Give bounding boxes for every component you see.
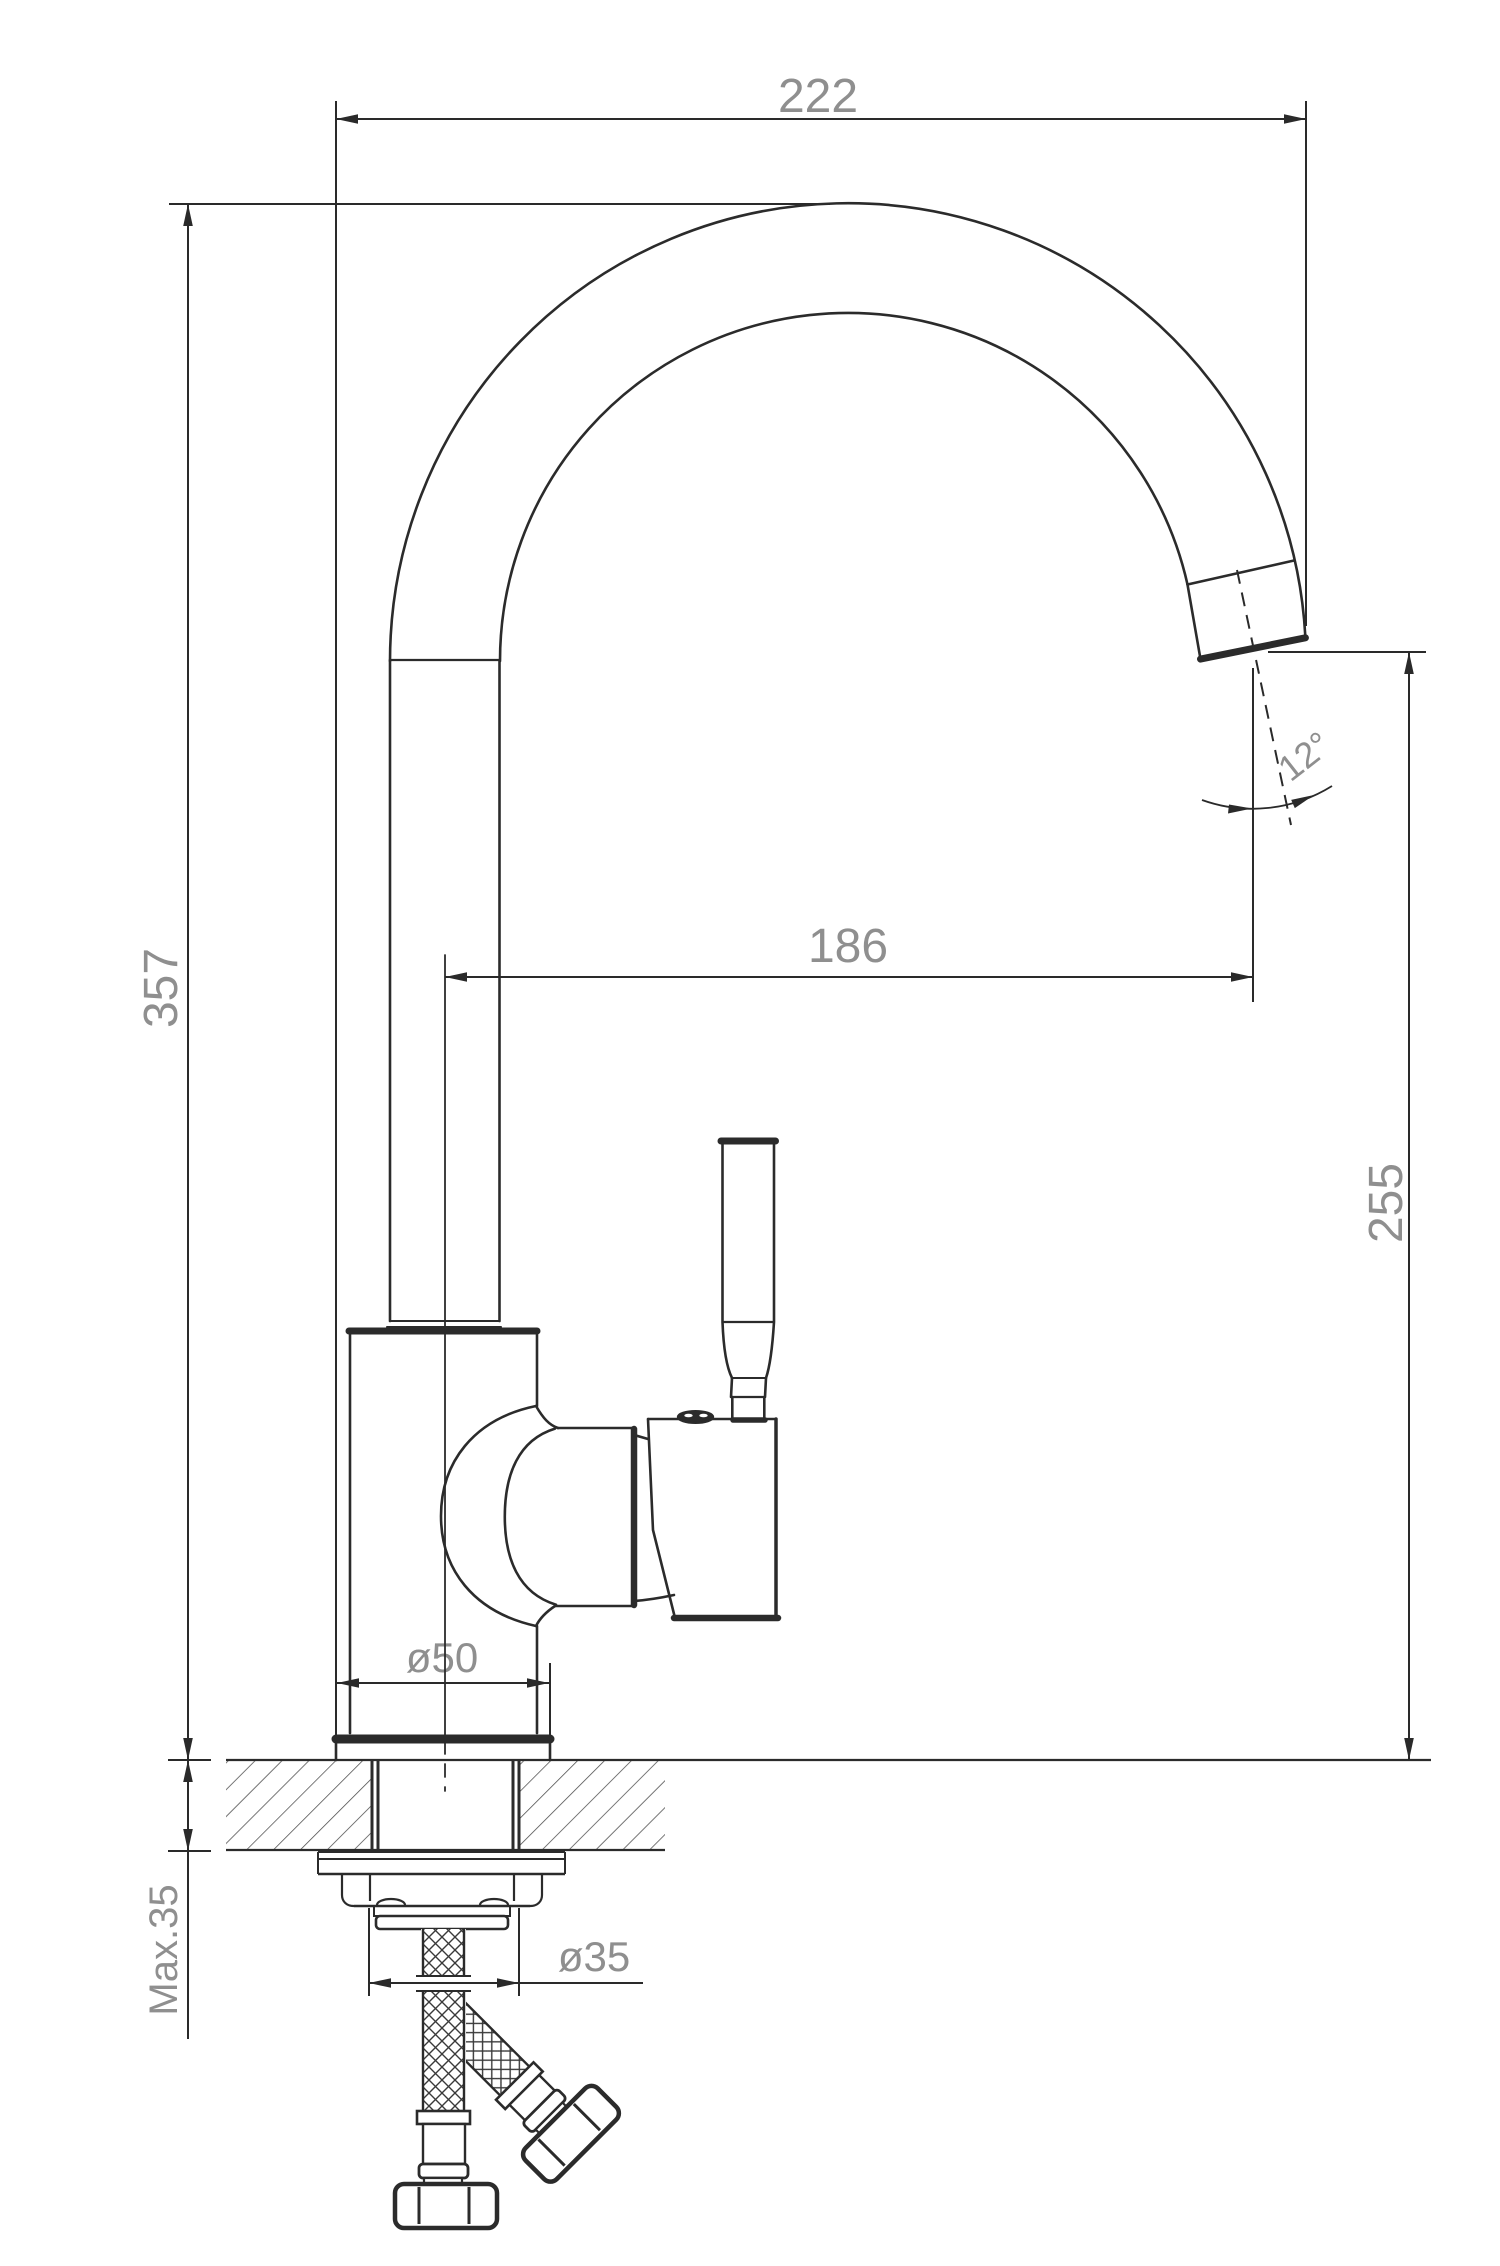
svg-text:186: 186 [808,920,888,973]
svg-text:255: 255 [1360,1163,1413,1243]
svg-text:222: 222 [778,70,858,123]
svg-text:Max.35: Max.35 [142,1884,186,2015]
svg-text:ø50: ø50 [406,1634,478,1681]
svg-text:357: 357 [135,948,188,1028]
svg-text:ø35: ø35 [558,1933,630,1980]
